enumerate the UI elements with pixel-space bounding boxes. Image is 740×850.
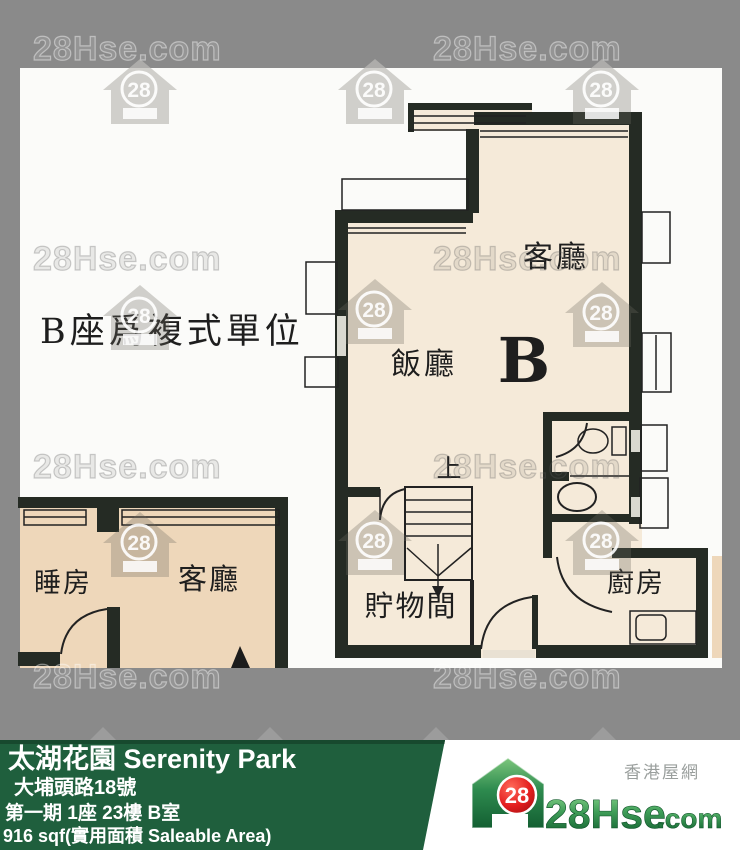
estate-area: 916 sqf(實用面積 Saleable Area)	[3, 825, 271, 846]
watermark-text: 28Hse.com	[433, 30, 622, 68]
logo-28-text: 28	[505, 783, 529, 808]
logo-brand-suffix: .com	[657, 803, 722, 834]
watermark-text: 28Hse.com	[33, 240, 222, 278]
watermark-text: 28Hse.com	[33, 30, 222, 68]
estate-unit: 第一期 1座 23樓 B室	[5, 801, 180, 824]
watermark-text: 28Hse.com	[433, 240, 622, 278]
label-dining: 飯廳	[391, 347, 457, 382]
label-bedroom: 睡房	[34, 568, 92, 599]
estate-address: 大埔頭路18號	[14, 775, 136, 799]
watermark-text: 28Hse.com	[433, 448, 622, 486]
estate-title: 太湖花園 Serenity Park	[8, 744, 297, 774]
watermark-text: 28Hse.com	[33, 448, 222, 486]
logo-brand-main: 28Hse	[545, 791, 666, 837]
watermark-text: 28Hse.com	[433, 658, 622, 696]
logo-tagline: 香港屋網	[624, 763, 700, 782]
info-bar: 太湖花園 Serenity Park 大埔頭路18號 第一期 1座 23樓 B室…	[0, 740, 740, 850]
entrance-threshold	[483, 650, 535, 658]
duplex-note: B座爲複式單位	[40, 312, 304, 352]
label-unit-b: B	[498, 324, 550, 397]
label-living-lower: 客廳	[178, 562, 240, 596]
watermark-text: 28Hse.com	[33, 658, 222, 696]
listing-image: 28	[0, 0, 740, 850]
label-storage: 貯物間	[364, 589, 457, 623]
